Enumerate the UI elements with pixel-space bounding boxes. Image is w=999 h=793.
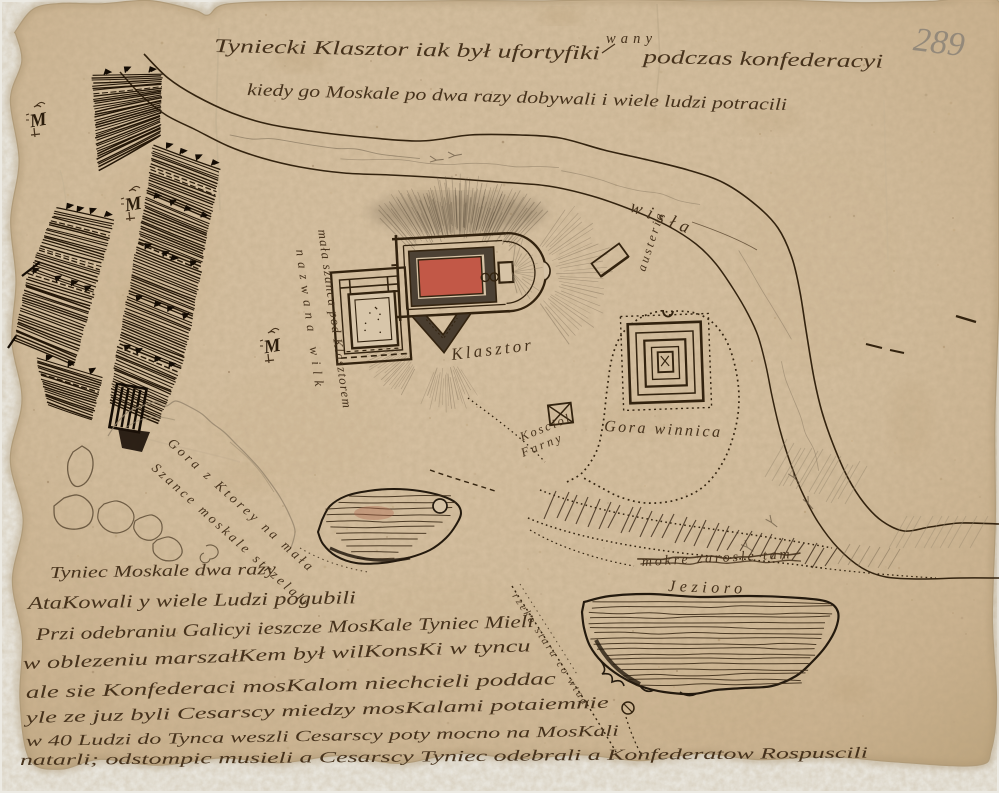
svg-text:Tyniec Moskale dwa razy: Tyniec Moskale dwa razy [50, 559, 277, 582]
svg-text:289: 289 [912, 21, 967, 64]
